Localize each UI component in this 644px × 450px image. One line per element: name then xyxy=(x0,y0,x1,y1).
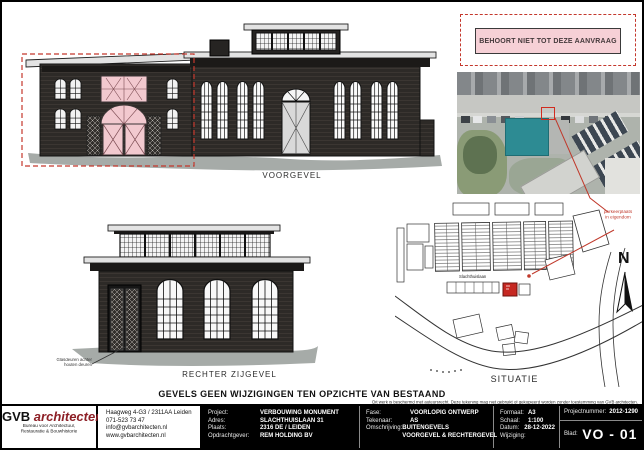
aerial-photo xyxy=(457,72,640,194)
rechter-zijgevel-label: RECHTER ZIJGEVEL xyxy=(162,370,297,379)
contact-phone: 071-523 73 47 xyxy=(106,418,200,426)
project-info: Project:VERBOUWING MONUMENT Adres:SLACHT… xyxy=(202,406,360,448)
phase-value: VOORLOPIG ONTWERP xyxy=(410,410,479,418)
not-in-application-label: BEHOORT NIET TOT DEZE AANVRAAG xyxy=(479,38,616,45)
sheet-number-block: Projectnummer: 2012-1290 Blad: VO - 01 xyxy=(560,406,642,448)
description-line2: VOORGEVEL & RECHTERGEVEL xyxy=(402,433,497,441)
project-address: SLACHTHUISLAAN 31 xyxy=(260,418,324,426)
title-block: GVB architecten Bureau voor Architectuur… xyxy=(2,404,642,448)
scale-value: 1:100 xyxy=(528,418,543,426)
contact-address: Haagweg 4-G3 / 2311AA Leiden xyxy=(106,410,200,418)
format-value: A3 xyxy=(528,410,536,418)
contact-website: www.gvbarchitecten.nl xyxy=(106,433,200,441)
subject-building-marker xyxy=(503,283,517,296)
aerial-red-marker xyxy=(541,107,555,120)
phase-info: Fase:VOORLOPIG ONTWERP Tekenaar:AS Omsch… xyxy=(360,406,494,448)
date-value: 28-12-2022 xyxy=(524,425,555,433)
project-number: 2012-1290 xyxy=(609,409,638,417)
project-client: REM HOLDING BV xyxy=(260,433,313,441)
north-label: N xyxy=(618,250,630,268)
contact-email: info@gvbarchitecten.nl xyxy=(106,425,200,433)
site-plan-drawing: Slachthuislaan xyxy=(395,200,644,387)
draughtsman-value: AS xyxy=(410,418,418,426)
photo-teal-building xyxy=(505,118,549,156)
description-line1: BUITENGEVELS xyxy=(402,425,497,433)
centre-door xyxy=(282,89,310,154)
firm-name-bold: GVB xyxy=(2,409,30,424)
project-name: VERBOUWING MONUMENT xyxy=(260,410,339,418)
project-city: 2316 DE / LEIDEN xyxy=(260,425,310,433)
glass-door-annotation: Glasdeuren achter houten deuren xyxy=(46,358,92,368)
right-elevation-drawing xyxy=(32,197,322,377)
roof-lantern xyxy=(108,225,280,257)
parking-annotation: parkeerplaats in eigendom xyxy=(599,210,636,221)
situatie-label: SITUATIE xyxy=(457,374,572,384)
drawing-sheet: VOORGEVEL Glasdeuren achter houten deure… xyxy=(0,0,644,450)
not-in-application-inner: BEHOORT NIET TOT DEZE AANVRAAG xyxy=(475,28,621,54)
firm-logo: GVB architecten Bureau voor Architectuur… xyxy=(2,406,98,448)
main-note: GEVELS GEEN WIJZIGINGEN TEN OPZICHTE VAN… xyxy=(142,389,462,399)
voorgevel-label: VOORGEVEL xyxy=(212,171,372,180)
firm-contact: Haagweg 4-G3 / 2311AA Leiden 071-523 73 … xyxy=(98,406,202,448)
photo-buildings-top xyxy=(457,72,640,95)
chimney xyxy=(210,40,229,56)
sheet-code: VO - 01 xyxy=(582,431,638,439)
glass-door xyxy=(108,285,141,352)
front-elevation-drawing xyxy=(20,8,450,180)
firm-name-italic: architecten xyxy=(34,409,103,424)
format-info: Formaat:A3 Schaal:1:100 Datum:28-12-2022… xyxy=(494,406,560,448)
street-label: Slachthuislaan xyxy=(459,274,487,279)
north-arrow-icon xyxy=(614,270,636,316)
not-in-application-box: BEHOORT NIET TOT DEZE AANVRAAG xyxy=(460,14,636,66)
roof-lantern xyxy=(244,24,348,54)
